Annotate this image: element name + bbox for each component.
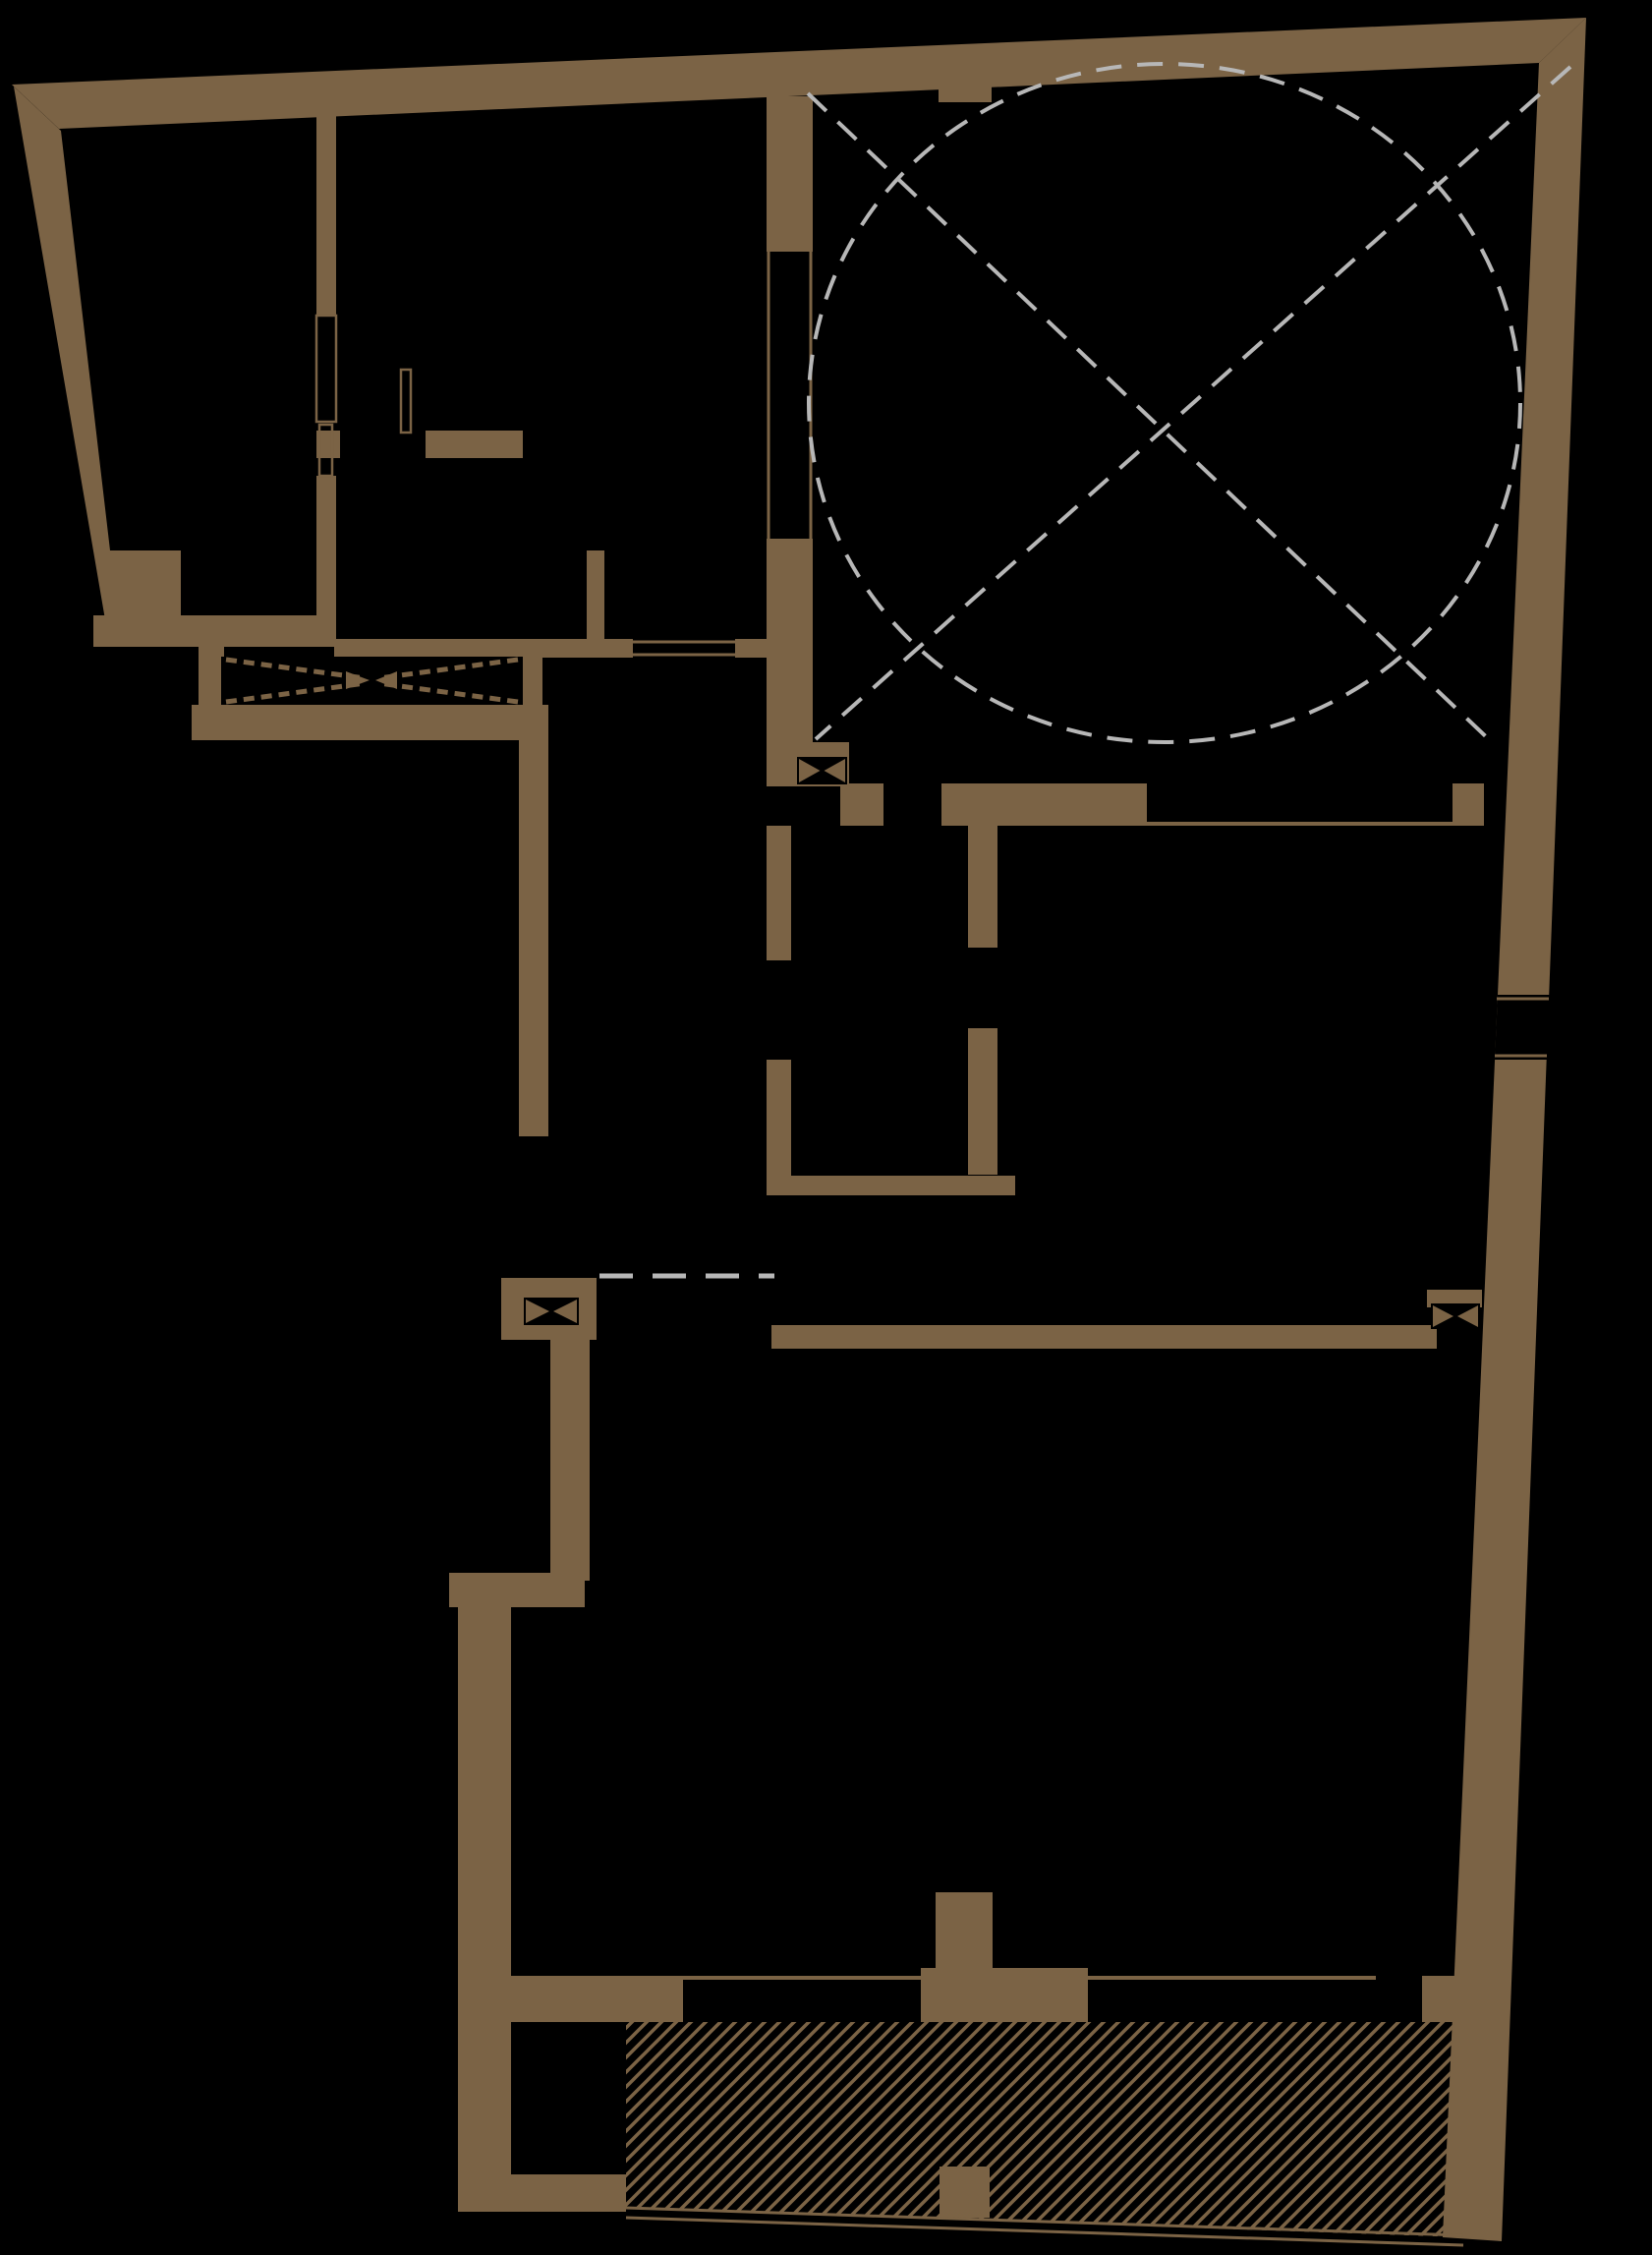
roomB-bottom-wall-right	[426, 431, 523, 458]
bigroom-south-wall-3	[1453, 783, 1484, 826]
outer-left-wall-with-step	[14, 87, 181, 637]
roomC-west-wall-lower	[767, 1060, 791, 1195]
stair-band-left-cap	[199, 647, 224, 708]
section-marker-2	[524, 1298, 579, 1325]
symbols-layer	[221, 657, 1480, 1329]
void-diagonal-ne-sw	[816, 67, 1570, 739]
mid-west-wall	[550, 1337, 590, 1581]
section-marker-3	[1431, 1303, 1480, 1329]
stair-hall-top-wall-right	[334, 639, 621, 658]
lower-south-wall	[458, 2174, 626, 2212]
facade-t-pier-stub	[936, 1892, 993, 1971]
bigroom-south-wall-1	[840, 783, 883, 826]
lower-room-top-wall	[458, 1976, 683, 2022]
lower-west-wall	[458, 1607, 511, 2212]
right-wall-door-opening	[1495, 995, 1550, 1060]
stair-flight-symbol	[221, 657, 523, 705]
dashed-annotations-layer	[599, 64, 1570, 1276]
bigroom-south-wall-2	[941, 783, 1147, 826]
roomC-west-wall-upper	[767, 826, 791, 960]
facade-right-pier	[1422, 1976, 1477, 2022]
divider-window-symbol	[316, 316, 336, 422]
west-jog-wall	[449, 1573, 585, 1607]
stair-band-right-cap	[523, 655, 542, 707]
roomCD-divider-lower	[968, 1028, 997, 1175]
corridor-west-wall	[519, 737, 548, 1136]
void-diagonal-nw-se	[808, 93, 1492, 742]
terrace-hatched-area	[626, 2022, 1463, 2237]
window-jamb-east	[735, 639, 769, 658]
bigroom-west-wall-upper	[767, 96, 813, 252]
walls-layer	[12, 18, 1586, 2241]
terrace-hatch-layer	[626, 2022, 1463, 2237]
section-marker-1	[797, 757, 847, 784]
roomB-door-leaf	[401, 370, 411, 433]
top-wall-pier	[939, 83, 992, 102]
closet-top-wall	[791, 1176, 1015, 1195]
stair-band-bottom-wall	[192, 705, 548, 740]
floor-plan	[0, 0, 1652, 2255]
livingroom-north-wall	[771, 1325, 1437, 1349]
floor-plan-svg	[0, 0, 1652, 2255]
facade-t-pier-base	[921, 1968, 1088, 2022]
terrace-post	[940, 2167, 990, 2218]
void-dashed-circle	[809, 64, 1520, 742]
room-divider-wall-upper	[316, 108, 336, 316]
stair-hall-top-wall-left	[93, 615, 336, 647]
bigroom-west-wall-lower	[767, 539, 813, 745]
vestibule-west-wall	[587, 550, 604, 643]
roomCD-divider-upper	[968, 826, 997, 948]
room-divider-wall-lower	[316, 476, 336, 619]
